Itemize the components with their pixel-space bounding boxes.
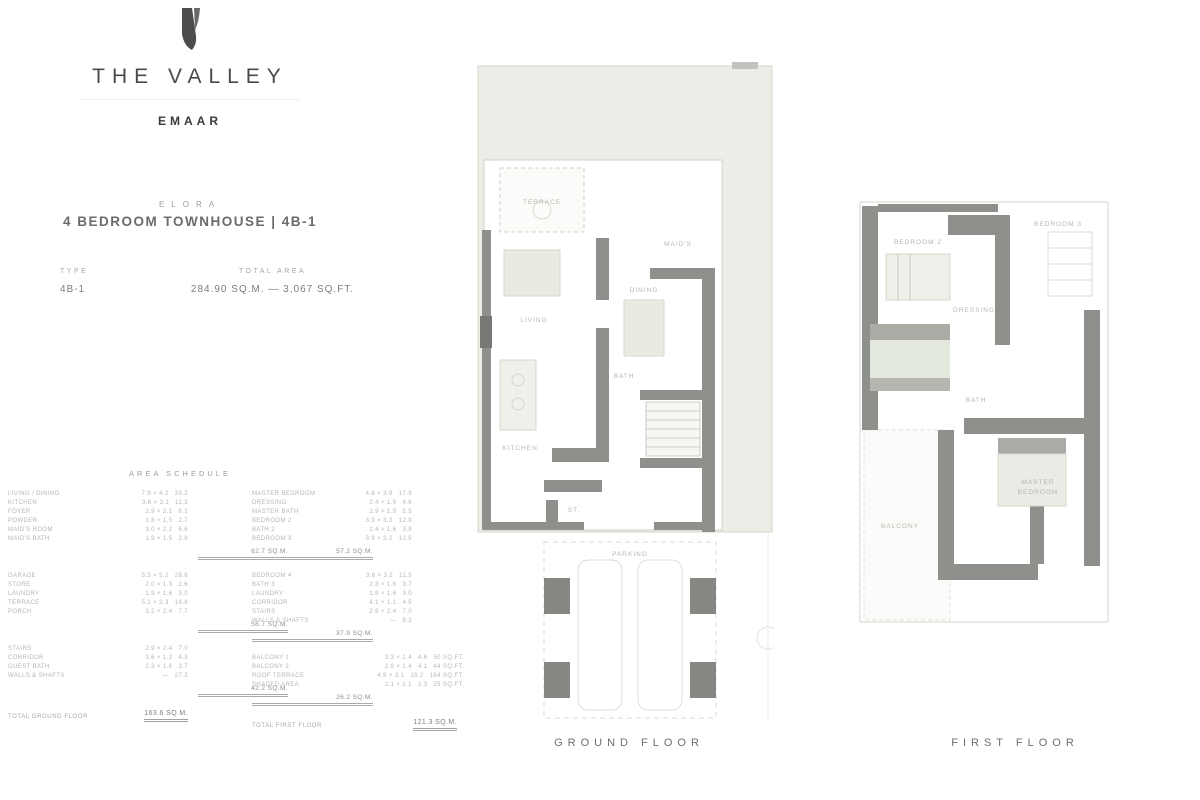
schedule-row: MAID'S ROOM3.0 × 2.26.6 [8,526,188,535]
schedule-group: GARAGE5.5 × 5.228.6STORE2.0 × 1.32.6LAUN… [8,572,288,633]
room-label-dressing: DRESSING [953,307,995,314]
room-label-bedroom3: BEDROOM 3 [1034,221,1082,228]
schedule-cell: PORCH [8,608,139,617]
schedule-cell: 2.4 × 1.6 [369,526,396,535]
schedule-row: LAUNDRY1.9 × 1.63.0 [8,590,188,599]
spec-total-area: TOTAL AREA 284.90 SQ.M. — 3,067 SQ.FT. [175,268,370,295]
schedule-cell: 3.0 [178,590,188,599]
schedule-cell: LAUNDRY [252,590,363,599]
schedule-cell: BATH 3 [252,581,363,590]
schedule-cell: LIVING / DINING [8,490,136,499]
schedule-cell: SHADED AREA [252,681,379,690]
schedule-row: STORE2.0 × 1.32.6 [8,581,188,590]
schedule-cell: CORRIDOR [252,599,363,608]
room-label-bath: BATH [966,397,987,404]
schedule-cell: 27.2 [175,672,188,681]
unit-title: 4 BEDROOM TOWNHOUSE | 4B-1 [20,214,360,229]
schedule-row: GUEST BATH2.3 × 1.63.7 [8,663,188,672]
schedule-cell: 2.3 [418,681,428,690]
schedule-group: BEDROOM 43.6 × 3.211.5BATH 32.3 × 1.63.7… [252,572,464,642]
schedule-cell: BEDROOM 3 [252,535,360,544]
schedule-cell: FOYER [8,508,139,517]
schedule-cell: 5.5 [402,508,412,517]
spec-area-value: 284.90 SQ.M. — 3,067 SQ.FT. [175,284,370,295]
first-floor-caption: FIRST FLOOR [900,737,1130,749]
ground-floor-caption: GROUND FLOOR [474,737,784,749]
schedule-cell: 1.9 × 1.6 [369,590,396,599]
schedule-cell: 2.3 × 1.6 [369,581,396,590]
schedule-cell: 7.0 [178,645,188,654]
room-label-master-2: BEDROOM [1018,489,1059,496]
brand-header: THE VALLEY EMAAR [20,0,360,128]
schedule-cell: 164 SQ.FT. [430,672,464,681]
spec-area-label: TOTAL AREA [175,268,370,275]
schedule-cell: 2.0 × 1.3 [145,581,172,590]
brand-divider [80,99,300,100]
schedule-cell: 12.5 [399,535,412,544]
schedule-cell: 12.9 [399,517,412,526]
valley-leaf-logo-icon [170,6,210,52]
schedule-cell: 3.9 × 3.3 [366,517,393,526]
schedule-row: MASTER BEDROOM4.6 × 3.917.9 [252,490,412,499]
schedule-cell: POWDER [8,517,139,526]
schedule-row: ROOF TERRACE4.9 × 3.115.2164 SQ.FT. [252,672,464,681]
schedule-cell: KITCHEN [8,499,136,508]
schedule-cell: 11.5 [399,572,412,581]
schedule-row: BATH 32.3 × 1.63.7 [252,581,412,590]
schedule-cell: 4.1 [418,663,428,672]
schedule-group: MASTER BEDROOM4.6 × 3.917.9DRESSING2.4 ×… [252,490,464,560]
schedule-cell: 3.6 × 3.1 [142,499,169,508]
unit-title-block: ELORA 4 BEDROOM TOWNHOUSE | 4B-1 [20,200,360,229]
first-floor-plan-drawing: BEDROOM 2 BEDROOM 3 BATH DRESSING MASTER… [852,192,1112,752]
schedule-cell: — [162,672,168,681]
ground-floor-plan-drawing: TERRACE LIVING DINING KITCHEN MAID'S BAT… [474,60,774,760]
schedule-row: BALCONY 13.3 × 1.44.650 SQ.FT. [252,654,464,663]
schedule-row: BATH 22.4 × 1.63.8 [252,526,412,535]
schedule-cell: 3.3 × 1.4 [385,654,412,663]
schedule-row: MAID'S BATH1.9 × 1.52.9 [8,535,188,544]
schedule-cell: 28.6 [175,572,188,581]
room-label-dining: DINING [630,287,659,294]
schedule-cell: STORE [8,581,139,590]
area-schedule-header: AREA SCHEDULE [110,469,250,478]
schedule-row: STAIRS2.9 × 2.47.0 [252,608,412,617]
schedule-cell: 5.1 × 3.3 [142,599,169,608]
schedule-row: PORCH3.2 × 2.47.7 [8,608,188,617]
schedule-grand-total: TOTAL GROUND FLOOR163.6 SQ.M. [8,709,188,722]
schedule-cell: 2.6 [178,581,188,590]
schedule-group: BALCONY 13.3 × 1.44.650 SQ.FT.BALCONY 22… [252,654,464,706]
schedule-cell: 16.8 [175,599,188,608]
schedule-group: STAIRS2.9 × 2.47.0CORRIDOR3.6 × 1.24.3GU… [8,645,288,697]
schedule-cell: 4.5 [402,599,412,608]
schedule-cell: 8.2 [402,617,412,626]
schedule-cell: STAIRS [8,645,139,654]
room-label-master: MASTER [1021,479,1054,486]
schedule-cell: WALLS & SHAFTS [8,672,156,681]
schedule-cell: 2.7 [178,517,188,526]
schedule-cell: 3.6 × 1.2 [145,654,172,663]
spec-type: TYPE 4B-1 [60,268,160,295]
room-label-maid: MAID'S [664,241,692,248]
schedule-cell: 1.8 × 1.5 [145,517,172,526]
schedule-cell: 7.9 × 4.2 [142,490,169,499]
first-floor-plan: BEDROOM 2 BEDROOM 3 BATH DRESSING MASTER… [852,192,1112,752]
schedule-cell: MAID'S ROOM [8,526,139,535]
schedule-row: DRESSING2.4 × 1.94.6 [252,499,412,508]
schedule-row: SHADED AREA2.1 × 1.12.325 SQ.FT. [252,681,464,690]
room-label-parking: PARKING [612,551,648,558]
brand-subtitle: EMAAR [20,114,360,128]
schedule-cell: 33.2 [175,490,188,499]
ground-floor-plan: TERRACE LIVING DINING KITCHEN MAID'S BAT… [474,60,774,760]
schedule-cell: 7.0 [402,608,412,617]
schedule-cell: 2.1 × 1.1 [385,681,412,690]
schedule-cell: 25 SQ.FT. [433,681,464,690]
room-label-bedroom2: BEDROOM 2 [894,239,942,246]
schedule-cell: 3.6 × 3.2 [366,572,393,581]
schedule-row: CORRIDOR3.6 × 1.24.3 [8,654,188,663]
schedule-cell: STAIRS [252,608,363,617]
schedule-cell: — [390,617,396,626]
room-label-bath: BATH [614,373,635,380]
schedule-cell: LAUNDRY [8,590,139,599]
schedule-cell: DRESSING [252,499,363,508]
schedule-cell: 3.8 [402,526,412,535]
schedule-subtotal: 37.9 SQ.M. [252,629,373,642]
schedule-row: LIVING / DINING7.9 × 4.233.2 [8,490,188,499]
schedule-cell: 2.9 × 1.9 [369,508,396,517]
schedule-cell: BATH 2 [252,526,363,535]
schedule-row: KITCHEN3.6 × 3.111.2 [8,499,188,508]
schedule-cell: GARAGE [8,572,136,581]
schedule-cell: 4.9 × 3.1 [377,672,404,681]
schedule-cell: 2.3 × 1.6 [145,663,172,672]
schedule-cell: 3.7 [402,581,412,590]
schedule-row: WALLS & SHAFTS—8.2 [252,617,412,626]
schedule-cell: 50 SQ.FT. [433,654,464,663]
schedule-row: TERRACE5.1 × 3.316.8 [8,599,188,608]
spec-type-label: TYPE [60,268,160,275]
schedule-cell: 6.6 [178,526,188,535]
schedule-cell: 1.9 × 1.6 [145,590,172,599]
schedule-cell: 5.5 × 5.2 [142,572,169,581]
brand-name: THE VALLEY [20,65,360,89]
schedule-cell: 4.3 [178,654,188,663]
room-label-kitchen: KITCHEN [502,445,538,452]
brochure-page: THE VALLEY EMAAR ELORA 4 BEDROOM TOWNHOU… [0,0,1200,800]
schedule-cell: 4.6 [418,654,428,663]
schedule-cell: 2.9 × 2.1 [145,508,172,517]
room-label-terrace: TERRACE [523,199,561,206]
schedule-grand-total-value: 121.3 SQ.M. [413,718,457,731]
schedule-cell: ROOF TERRACE [252,672,371,681]
area-schedule-ground-floor: LIVING / DINING7.9 × 4.233.2KITCHEN3.6 ×… [8,490,288,722]
schedule-row: MASTER BATH2.9 × 1.95.5 [252,508,412,517]
schedule-cell: 3.0 [402,590,412,599]
schedule-cell: MAID'S BATH [8,535,139,544]
room-label-balcony: BALCONY [881,523,919,530]
schedule-cell: 2.9 × 2.4 [369,608,396,617]
schedule-grand-total-label: TOTAL GROUND FLOOR [8,713,88,722]
schedule-cell: GUEST BATH [8,663,139,672]
schedule-cell: 4.1 × 1.1 [369,599,396,608]
schedule-row: STAIRS2.9 × 2.47.0 [8,645,188,654]
schedule-cell: 4.6 × 3.9 [366,490,393,499]
schedule-cell: BEDROOM 4 [252,572,360,581]
schedule-row: WALLS & SHAFTS—27.2 [8,672,188,681]
schedule-grand-total-label: TOTAL FIRST FLOOR [252,722,322,731]
schedule-row: GARAGE5.5 × 5.228.6 [8,572,188,581]
schedule-subtotal: 26.2 SQ.M. [252,693,373,706]
schedule-cell: 2.9 × 2.4 [145,645,172,654]
schedule-row: POWDER1.8 × 1.52.7 [8,517,188,526]
schedule-row: FOYER2.9 × 2.16.1 [8,508,188,517]
schedule-cell: WALLS & SHAFTS [252,617,384,626]
schedule-cell: 2.9 × 1.4 [385,663,412,672]
schedule-cell: BEDROOM 2 [252,517,360,526]
schedule-cell: BALCONY 1 [252,654,379,663]
schedule-cell: MASTER BATH [252,508,363,517]
schedule-cell: 11.2 [175,499,188,508]
schedule-cell: 2.9 [178,535,188,544]
schedule-cell: BALCONY 2 [252,663,379,672]
schedule-row: CORRIDOR4.1 × 1.14.5 [252,599,412,608]
schedule-cell: MASTER BEDROOM [252,490,360,499]
schedule-group: LIVING / DINING7.9 × 4.233.2KITCHEN3.6 ×… [8,490,288,560]
schedule-cell: 2.4 × 1.9 [369,499,396,508]
schedule-row: BALCONY 22.9 × 1.44.144 SQ.FT. [252,663,464,672]
schedule-row: BEDROOM 23.9 × 3.312.9 [252,517,412,526]
schedule-cell: 3.2 × 2.4 [145,608,172,617]
schedule-cell: 17.9 [399,490,412,499]
schedule-cell: TERRACE [8,599,136,608]
area-schedule-first-floor: MASTER BEDROOM4.6 × 3.917.9DRESSING2.4 ×… [252,490,464,731]
schedule-row: BEDROOM 33.9 × 3.212.5 [252,535,412,544]
schedule-cell: 7.7 [178,608,188,617]
schedule-cell: 15.2 [410,672,423,681]
schedule-cell: CORRIDOR [8,654,139,663]
spec-type-value: 4B-1 [60,284,160,295]
schedule-row: LAUNDRY1.9 × 1.63.0 [252,590,412,599]
room-label-store: ST. [568,507,580,514]
schedule-grand-total-value: 163.6 SQ.M. [144,709,188,722]
schedule-cell: 3.7 [178,663,188,672]
schedule-subtotal: 57.2 SQ.M. [252,547,373,560]
schedule-cell: 1.9 × 1.5 [145,535,172,544]
schedule-cell: 4.6 [402,499,412,508]
schedule-cell: 3.9 × 3.2 [366,535,393,544]
schedule-cell: 44 SQ.FT. [433,663,464,672]
schedule-row: BEDROOM 43.6 × 3.211.5 [252,572,412,581]
schedule-cell: 6.1 [178,508,188,517]
room-label-living: LIVING [520,317,547,324]
schedule-cell: 3.0 × 2.2 [145,526,172,535]
unit-eyebrow: ELORA [20,200,360,209]
schedule-grand-total: TOTAL FIRST FLOOR121.3 SQ.M. [252,718,457,731]
